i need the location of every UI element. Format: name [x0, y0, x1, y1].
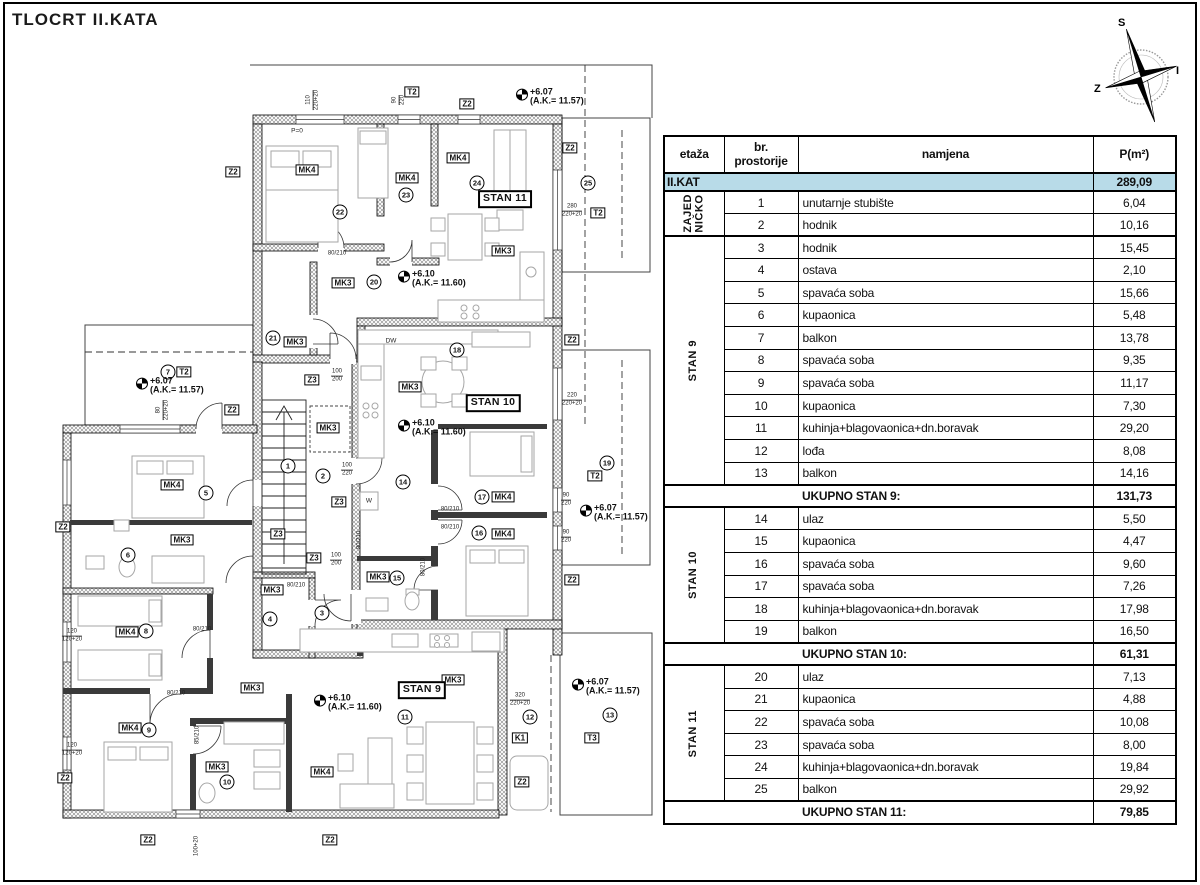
room-number: 25 — [724, 778, 798, 801]
room-number: 3 — [724, 236, 798, 259]
table-row: ZAJED NIČKO1unutarnje stubište6,04 — [664, 191, 1176, 214]
room-area: 14,16 — [1093, 462, 1176, 485]
header-namjena: namjena — [798, 136, 1093, 173]
room-number: 15 — [724, 530, 798, 553]
page: { "title": "TLOCRT II.KATA", "compass": … — [0, 0, 1200, 885]
room-area: 19,84 — [1093, 756, 1176, 779]
room-number: 8 — [724, 349, 798, 372]
room-number: 13 — [724, 462, 798, 485]
room-area: 8,08 — [1093, 440, 1176, 463]
room-name: unutarnje stubište — [798, 191, 1093, 214]
room-number: 7 — [724, 327, 798, 350]
header-p-m2: P(m²) — [1093, 136, 1176, 173]
floor-label: II.KAT — [664, 173, 1093, 191]
room-area: 17,98 — [1093, 598, 1176, 621]
room-area: 15,66 — [1093, 281, 1176, 304]
table-row: 22spavaća soba10,08 — [664, 711, 1176, 734]
group-label: STAN 11 — [688, 710, 700, 757]
room-area: 4,88 — [1093, 688, 1176, 711]
room-number: 16 — [724, 553, 798, 576]
floor-plan-drawing — [0, 0, 660, 885]
room-name: ulaz — [798, 507, 1093, 530]
room-name: balkon — [798, 462, 1093, 485]
group-total-row: UKUPNO STAN 11:79,85 — [664, 801, 1176, 824]
table-row: 10kupaonica7,30 — [664, 394, 1176, 417]
table-header: etaža br. prostorije namjena P(m²) — [664, 136, 1176, 173]
room-number: 19 — [724, 620, 798, 643]
room-area: 29,20 — [1093, 417, 1176, 440]
table-row: 5spavaća soba15,66 — [664, 281, 1176, 304]
compass-rose: S I Z — [1090, 12, 1190, 127]
room-number: 5 — [724, 281, 798, 304]
table-row: 23spavaća soba8,00 — [664, 733, 1176, 756]
room-name: spavaća soba — [798, 553, 1093, 576]
table-row: 25balkon29,92 — [664, 778, 1176, 801]
room-area: 16,50 — [1093, 620, 1176, 643]
table-row: 16spavaća soba9,60 — [664, 553, 1176, 576]
group-total-label: UKUPNO STAN 9: — [664, 485, 1093, 508]
group-label: STAN 10 — [688, 551, 700, 599]
compass-east-label: I — [1176, 65, 1179, 77]
table-row: 6kupaonica5,48 — [664, 304, 1176, 327]
room-area: 9,35 — [1093, 349, 1176, 372]
room-name: ulaz — [798, 665, 1093, 688]
table-row: STAN 1014ulaz5,50 — [664, 507, 1176, 530]
room-area: 5,50 — [1093, 507, 1176, 530]
room-number: 11 — [724, 417, 798, 440]
staircase — [262, 400, 350, 574]
room-number: 23 — [724, 733, 798, 756]
table-row: 12lođa8,08 — [664, 440, 1176, 463]
room-name: kuhinja+blagovaonica+dn.boravak — [798, 417, 1093, 440]
table-row: 24kuhinja+blagovaonica+dn.boravak19,84 — [664, 756, 1176, 779]
group-total-label: UKUPNO STAN 10: — [664, 643, 1093, 666]
group-label-cell: STAN 10 — [664, 507, 724, 643]
room-area: 8,00 — [1093, 733, 1176, 756]
room-name: hodnik — [798, 214, 1093, 237]
table-row: 11kuhinja+blagovaonica+dn.boravak29,20 — [664, 417, 1176, 440]
compass-north-label: S — [1118, 17, 1125, 29]
table-row: 13balkon14,16 — [664, 462, 1176, 485]
room-number: 14 — [724, 507, 798, 530]
room-name: spavaća soba — [798, 349, 1093, 372]
group-total-value: 131,73 — [1093, 485, 1176, 508]
header-etaza: etaža — [664, 136, 724, 173]
room-name: spavaća soba — [798, 575, 1093, 598]
room-number: 21 — [724, 688, 798, 711]
group-total-label: UKUPNO STAN 11: — [664, 801, 1093, 824]
room-name: kupaonica — [798, 530, 1093, 553]
floor-total-value: 289,09 — [1093, 173, 1176, 191]
room-area: 10,16 — [1093, 214, 1176, 237]
room-number: 22 — [724, 711, 798, 734]
room-number: 9 — [724, 372, 798, 395]
room-number: 24 — [724, 756, 798, 779]
compass-west-label: Z — [1094, 83, 1101, 95]
group-label-cell: ZAJED NIČKO — [664, 191, 724, 236]
group-label-cell: STAN 11 — [664, 665, 724, 801]
table-row: 17spavaća soba7,26 — [664, 575, 1176, 598]
group-total-value: 61,31 — [1093, 643, 1176, 666]
table-row: 8spavaća soba9,35 — [664, 349, 1176, 372]
room-name: balkon — [798, 327, 1093, 350]
room-name: kuhinja+blagovaonica+dn.boravak — [798, 756, 1093, 779]
floor-total-row: II.KAT289,09 — [664, 173, 1176, 191]
group-label: STAN 9 — [688, 340, 700, 381]
room-area: 6,04 — [1093, 191, 1176, 214]
room-number: 18 — [724, 598, 798, 621]
room-name: kuhinja+blagovaonica+dn.boravak — [798, 598, 1093, 621]
room-number: 4 — [724, 259, 798, 282]
room-name: kupaonica — [798, 688, 1093, 711]
room-area: 4,47 — [1093, 530, 1176, 553]
room-area: 5,48 — [1093, 304, 1176, 327]
room-name: spavaća soba — [798, 281, 1093, 304]
group-label: ZAJED NIČKO — [683, 194, 706, 233]
group-total-row: UKUPNO STAN 9:131,73 — [664, 485, 1176, 508]
table-row: 15kupaonica4,47 — [664, 530, 1176, 553]
header-br-prostorije: br. prostorije — [724, 136, 798, 173]
room-area: 13,78 — [1093, 327, 1176, 350]
room-area: 10,08 — [1093, 711, 1176, 734]
group-label-cell: STAN 9 — [664, 236, 724, 485]
group-total-value: 79,85 — [1093, 801, 1176, 824]
table-row: STAN 93hodnik15,45 — [664, 236, 1176, 259]
group-total-row: UKUPNO STAN 10:61,31 — [664, 643, 1176, 666]
room-name: spavaća soba — [798, 733, 1093, 756]
room-name: ostava — [798, 259, 1093, 282]
room-number: 2 — [724, 214, 798, 237]
room-area: 15,45 — [1093, 236, 1176, 259]
room-number: 17 — [724, 575, 798, 598]
table-row: 9spavaća soba11,17 — [664, 372, 1176, 395]
room-name: kupaonica — [798, 394, 1093, 417]
room-number: 12 — [724, 440, 798, 463]
room-area: 11,17 — [1093, 372, 1176, 395]
room-name: balkon — [798, 620, 1093, 643]
table-row: 4ostava2,10 — [664, 259, 1176, 282]
room-area: 2,10 — [1093, 259, 1176, 282]
table-row: 2hodnik10,16 — [664, 214, 1176, 237]
room-name: spavaća soba — [798, 711, 1093, 734]
room-area: 7,13 — [1093, 665, 1176, 688]
room-area: 7,26 — [1093, 575, 1176, 598]
table-row: STAN 1120ulaz7,13 — [664, 665, 1176, 688]
room-number: 1 — [724, 191, 798, 214]
room-name: hodnik — [798, 236, 1093, 259]
room-area-table: etaža br. prostorije namjena P(m²) II.KA… — [663, 135, 1177, 825]
table-row: 19balkon16,50 — [664, 620, 1176, 643]
room-area: 29,92 — [1093, 778, 1176, 801]
room-area: 7,30 — [1093, 394, 1176, 417]
room-name: lođa — [798, 440, 1093, 463]
table-row: 21kupaonica4,88 — [664, 688, 1176, 711]
room-area: 9,60 — [1093, 553, 1176, 576]
room-name: spavaća soba — [798, 372, 1093, 395]
table-row: 7balkon13,78 — [664, 327, 1176, 350]
room-name: kupaonica — [798, 304, 1093, 327]
table-row: 18kuhinja+blagovaonica+dn.boravak17,98 — [664, 598, 1176, 621]
room-name: balkon — [798, 778, 1093, 801]
room-number: 10 — [724, 394, 798, 417]
room-number: 20 — [724, 665, 798, 688]
room-number: 6 — [724, 304, 798, 327]
furniture — [78, 128, 548, 812]
